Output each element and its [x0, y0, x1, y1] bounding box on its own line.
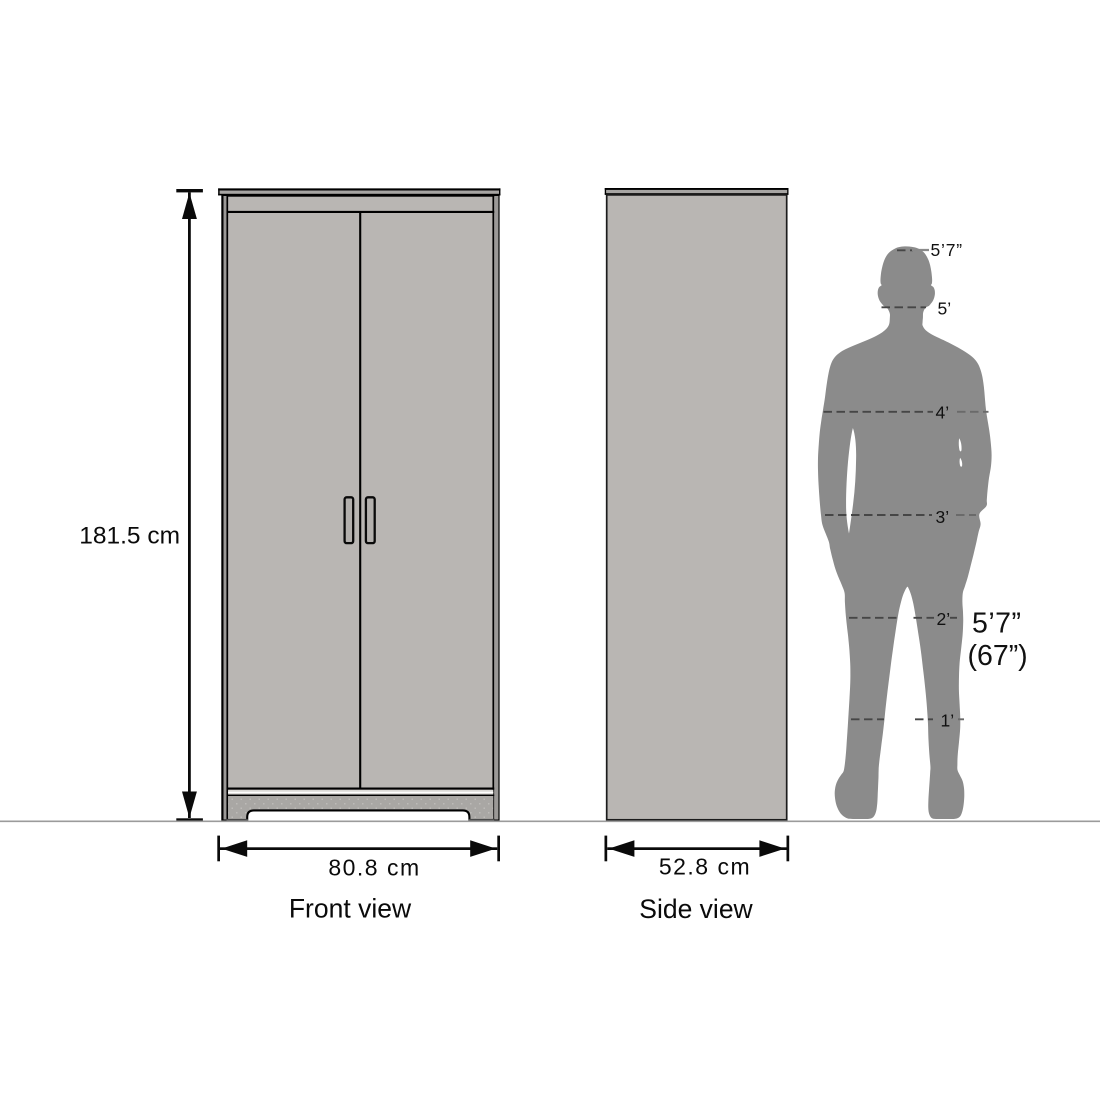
svg-text:4’: 4’ — [936, 403, 950, 423]
svg-text:3’: 3’ — [936, 507, 950, 527]
svg-text:5’7”: 5’7” — [931, 240, 963, 260]
svg-text:Side view: Side view — [639, 894, 753, 924]
svg-text:5’: 5’ — [938, 299, 952, 319]
svg-text:(67”): (67”) — [968, 640, 1028, 672]
svg-text:181.5 cm: 181.5 cm — [79, 523, 180, 550]
svg-text:52.8 cm: 52.8 cm — [659, 853, 751, 879]
svg-text:1’: 1’ — [941, 710, 955, 730]
svg-text:80.8 cm: 80.8 cm — [328, 855, 420, 881]
svg-text:2’: 2’ — [937, 609, 951, 629]
svg-text:Front view: Front view — [289, 893, 412, 923]
svg-text:5’7”: 5’7” — [972, 607, 1022, 639]
